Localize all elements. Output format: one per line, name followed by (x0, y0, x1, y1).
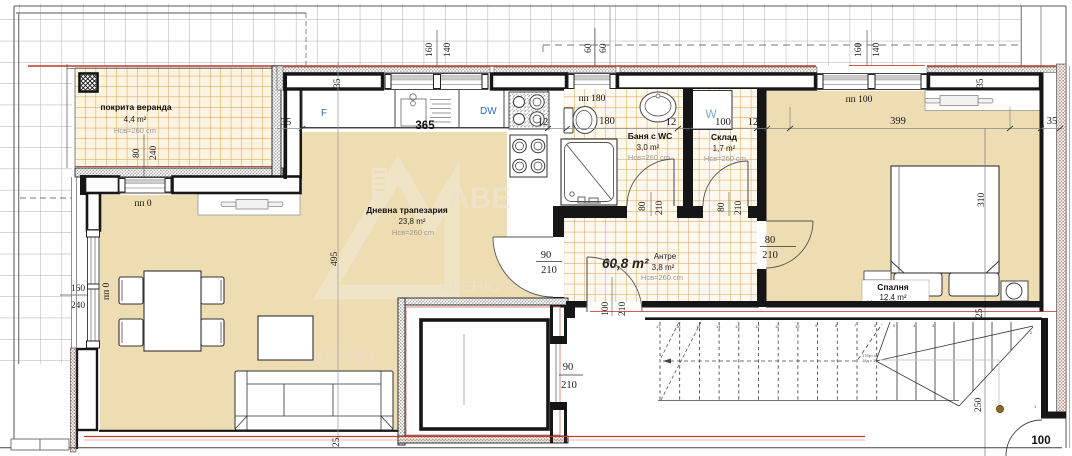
svg-text:240: 240 (71, 301, 86, 311)
svg-text:90: 90 (563, 362, 574, 373)
svg-text:12: 12 (748, 117, 759, 128)
svg-text:80: 80 (638, 201, 648, 211)
svg-text:АВЕ: АВЕ (448, 182, 511, 215)
svg-text:35: 35 (976, 78, 986, 88)
svg-text:DW: DW (480, 106, 497, 117)
svg-text:250: 250 (974, 398, 984, 413)
svg-text:16: 16 (676, 324, 681, 329)
svg-text:80: 80 (765, 235, 776, 246)
svg-text:210: 210 (762, 250, 778, 261)
svg-text:10: 10 (795, 324, 800, 329)
svg-text:140: 140 (443, 43, 453, 58)
svg-text:14: 14 (716, 324, 721, 329)
svg-text:90: 90 (541, 250, 552, 261)
svg-text:1,7 m²: 1,7 m² (713, 144, 736, 153)
svg-text:13: 13 (735, 324, 740, 329)
svg-text:25: 25 (975, 308, 985, 318)
svg-text:35: 35 (333, 78, 343, 88)
svg-text:Антре: Антре (654, 252, 677, 261)
svg-text:140: 140 (872, 43, 882, 58)
svg-text:12: 12 (538, 117, 549, 128)
svg-text:покрита веранда: покрита веранда (100, 102, 172, 112)
svg-text:60: 60 (599, 43, 609, 53)
svg-text:240: 240 (149, 146, 159, 161)
svg-text:Hсв=260 cm: Hсв=260 cm (628, 153, 670, 162)
svg-text:399: 399 (890, 116, 906, 127)
svg-text:16д х 30: 16д х 30 (862, 358, 878, 363)
svg-text:3,0 m²: 3,0 m² (637, 143, 660, 152)
svg-text:Дневна трапезария: Дневна трапезария (366, 205, 448, 215)
svg-text:60,8 m²: 60,8 m² (602, 256, 649, 271)
svg-text:160: 160 (854, 43, 864, 58)
svg-text:180: 180 (599, 116, 615, 127)
svg-text:210: 210 (561, 380, 577, 391)
svg-text:80: 80 (717, 202, 727, 212)
svg-text:17: 17 (656, 324, 661, 329)
svg-text:160: 160 (71, 284, 86, 294)
svg-text:12: 12 (755, 324, 760, 329)
svg-text:80: 80 (132, 148, 142, 158)
svg-text:365: 365 (415, 120, 435, 132)
svg-text:210: 210 (541, 265, 557, 276)
svg-text:100: 100 (715, 117, 731, 128)
svg-text:Hсв=260 cm: Hсв=260 cm (392, 228, 434, 237)
svg-text:35: 35 (281, 117, 292, 128)
svg-text:АВЕНЮ: АВЕНЮ (440, 279, 500, 296)
svg-text:23,8 m²: 23,8 m² (398, 217, 425, 226)
svg-text:Hсв=260 cm: Hсв=260 cm (114, 126, 156, 135)
svg-text:пп 180: пп 180 (579, 94, 606, 104)
svg-text:12: 12 (666, 117, 677, 128)
svg-text:пп 0: пп 0 (134, 199, 152, 209)
svg-text:Склад: Склад (711, 132, 738, 142)
svg-text:310: 310 (977, 193, 987, 208)
svg-text:4,4 m²: 4,4 m² (124, 115, 147, 124)
svg-text:Спалня: Спалня (877, 282, 909, 292)
svg-text:60: 60 (584, 43, 594, 53)
svg-text:3,8 m²: 3,8 m² (652, 263, 675, 272)
svg-text:100: 100 (1031, 435, 1050, 447)
svg-text:F: F (321, 108, 327, 119)
svg-text:100: 100 (601, 302, 611, 317)
svg-text:210: 210 (618, 302, 628, 317)
svg-text:495: 495 (330, 252, 340, 267)
svg-text:15: 15 (696, 324, 701, 329)
svg-text:210: 210 (655, 201, 665, 216)
svg-text:160: 160 (425, 43, 435, 58)
svg-text:пп 100: пп 100 (846, 95, 873, 105)
svg-text:35: 35 (1047, 116, 1058, 127)
svg-text:210: 210 (734, 201, 744, 216)
svg-text:25: 25 (332, 437, 342, 447)
svg-text:Hсв=260 cm: Hсв=260 cm (641, 273, 683, 282)
svg-text:Баня с WC: Баня с WC (628, 131, 673, 141)
svg-text:пп 0: пп 0 (102, 282, 112, 300)
